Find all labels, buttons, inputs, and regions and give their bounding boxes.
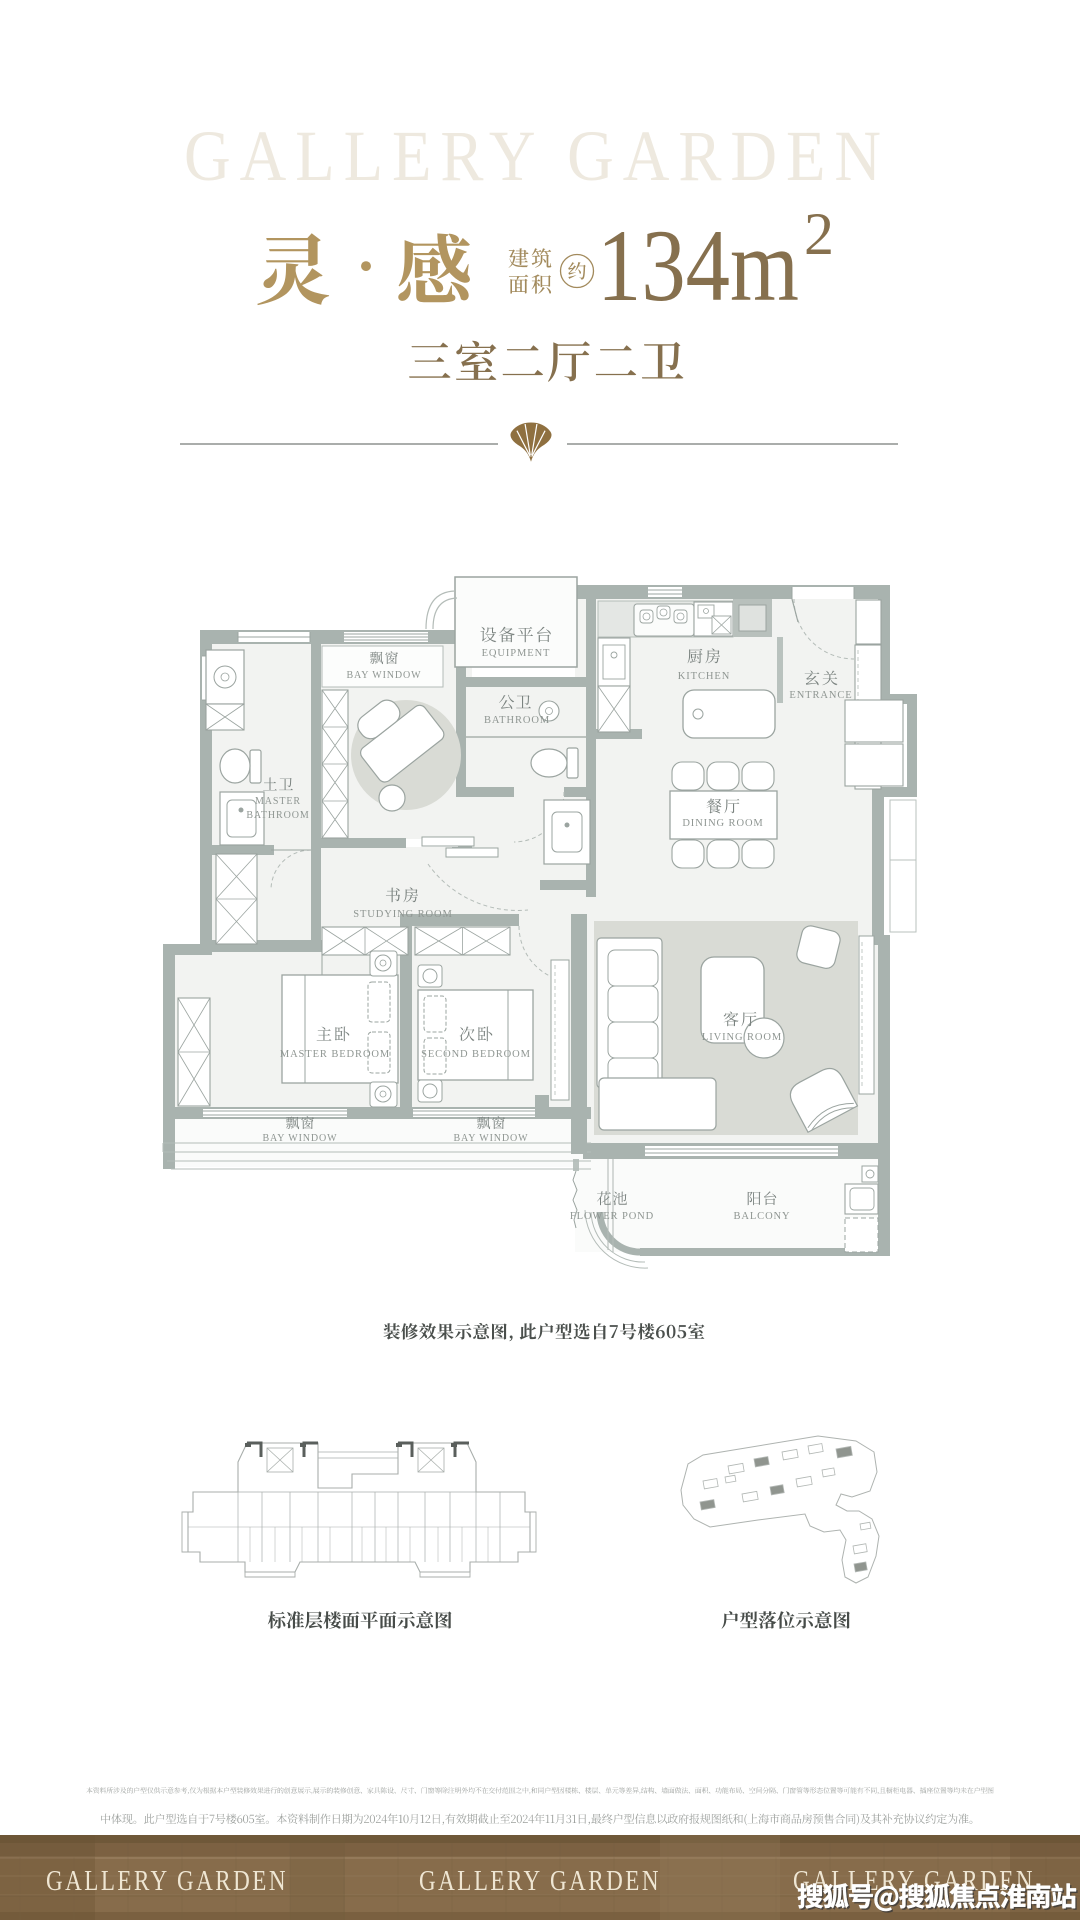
svg-text:BATHROOM: BATHROOM — [484, 715, 550, 726]
svg-text:BALCONY: BALCONY — [733, 1211, 790, 1222]
svg-text:BAY WINDOW: BAY WINDOW — [262, 1133, 337, 1144]
svg-text:KITCHEN: KITCHEN — [678, 671, 730, 682]
svg-text:BAY WINDOW: BAY WINDOW — [346, 670, 421, 681]
svg-text:FLOWER POND: FLOWER POND — [570, 1211, 654, 1222]
svg-text:134m: 134m — [597, 209, 799, 323]
svg-text:GALLERY GARDEN: GALLERY GARDEN — [419, 1866, 661, 1897]
svg-text:GALLERY GARDEN: GALLERY GARDEN — [184, 116, 890, 196]
svg-text:ENTRANCE: ENTRANCE — [789, 690, 852, 701]
svg-text:GALLERY GARDEN: GALLERY GARDEN — [46, 1866, 288, 1897]
svg-text:BAY WINDOW: BAY WINDOW — [453, 1133, 528, 1144]
svg-text:STUDYING ROOM: STUDYING ROOM — [353, 909, 453, 920]
svg-text:2: 2 — [804, 201, 834, 267]
svg-text:SECOND BEDROOM: SECOND BEDROOM — [421, 1049, 531, 1060]
svg-text:BATHROOM: BATHROOM — [246, 810, 309, 821]
svg-text:MASTER BEDROOM: MASTER BEDROOM — [280, 1049, 390, 1060]
svg-text:LIVING ROOM: LIVING ROOM — [702, 1032, 782, 1043]
svg-text:MASTER: MASTER — [255, 796, 301, 807]
svg-text:EQUIPMENT: EQUIPMENT — [482, 648, 551, 659]
svg-text:DINING ROOM: DINING ROOM — [682, 818, 763, 829]
